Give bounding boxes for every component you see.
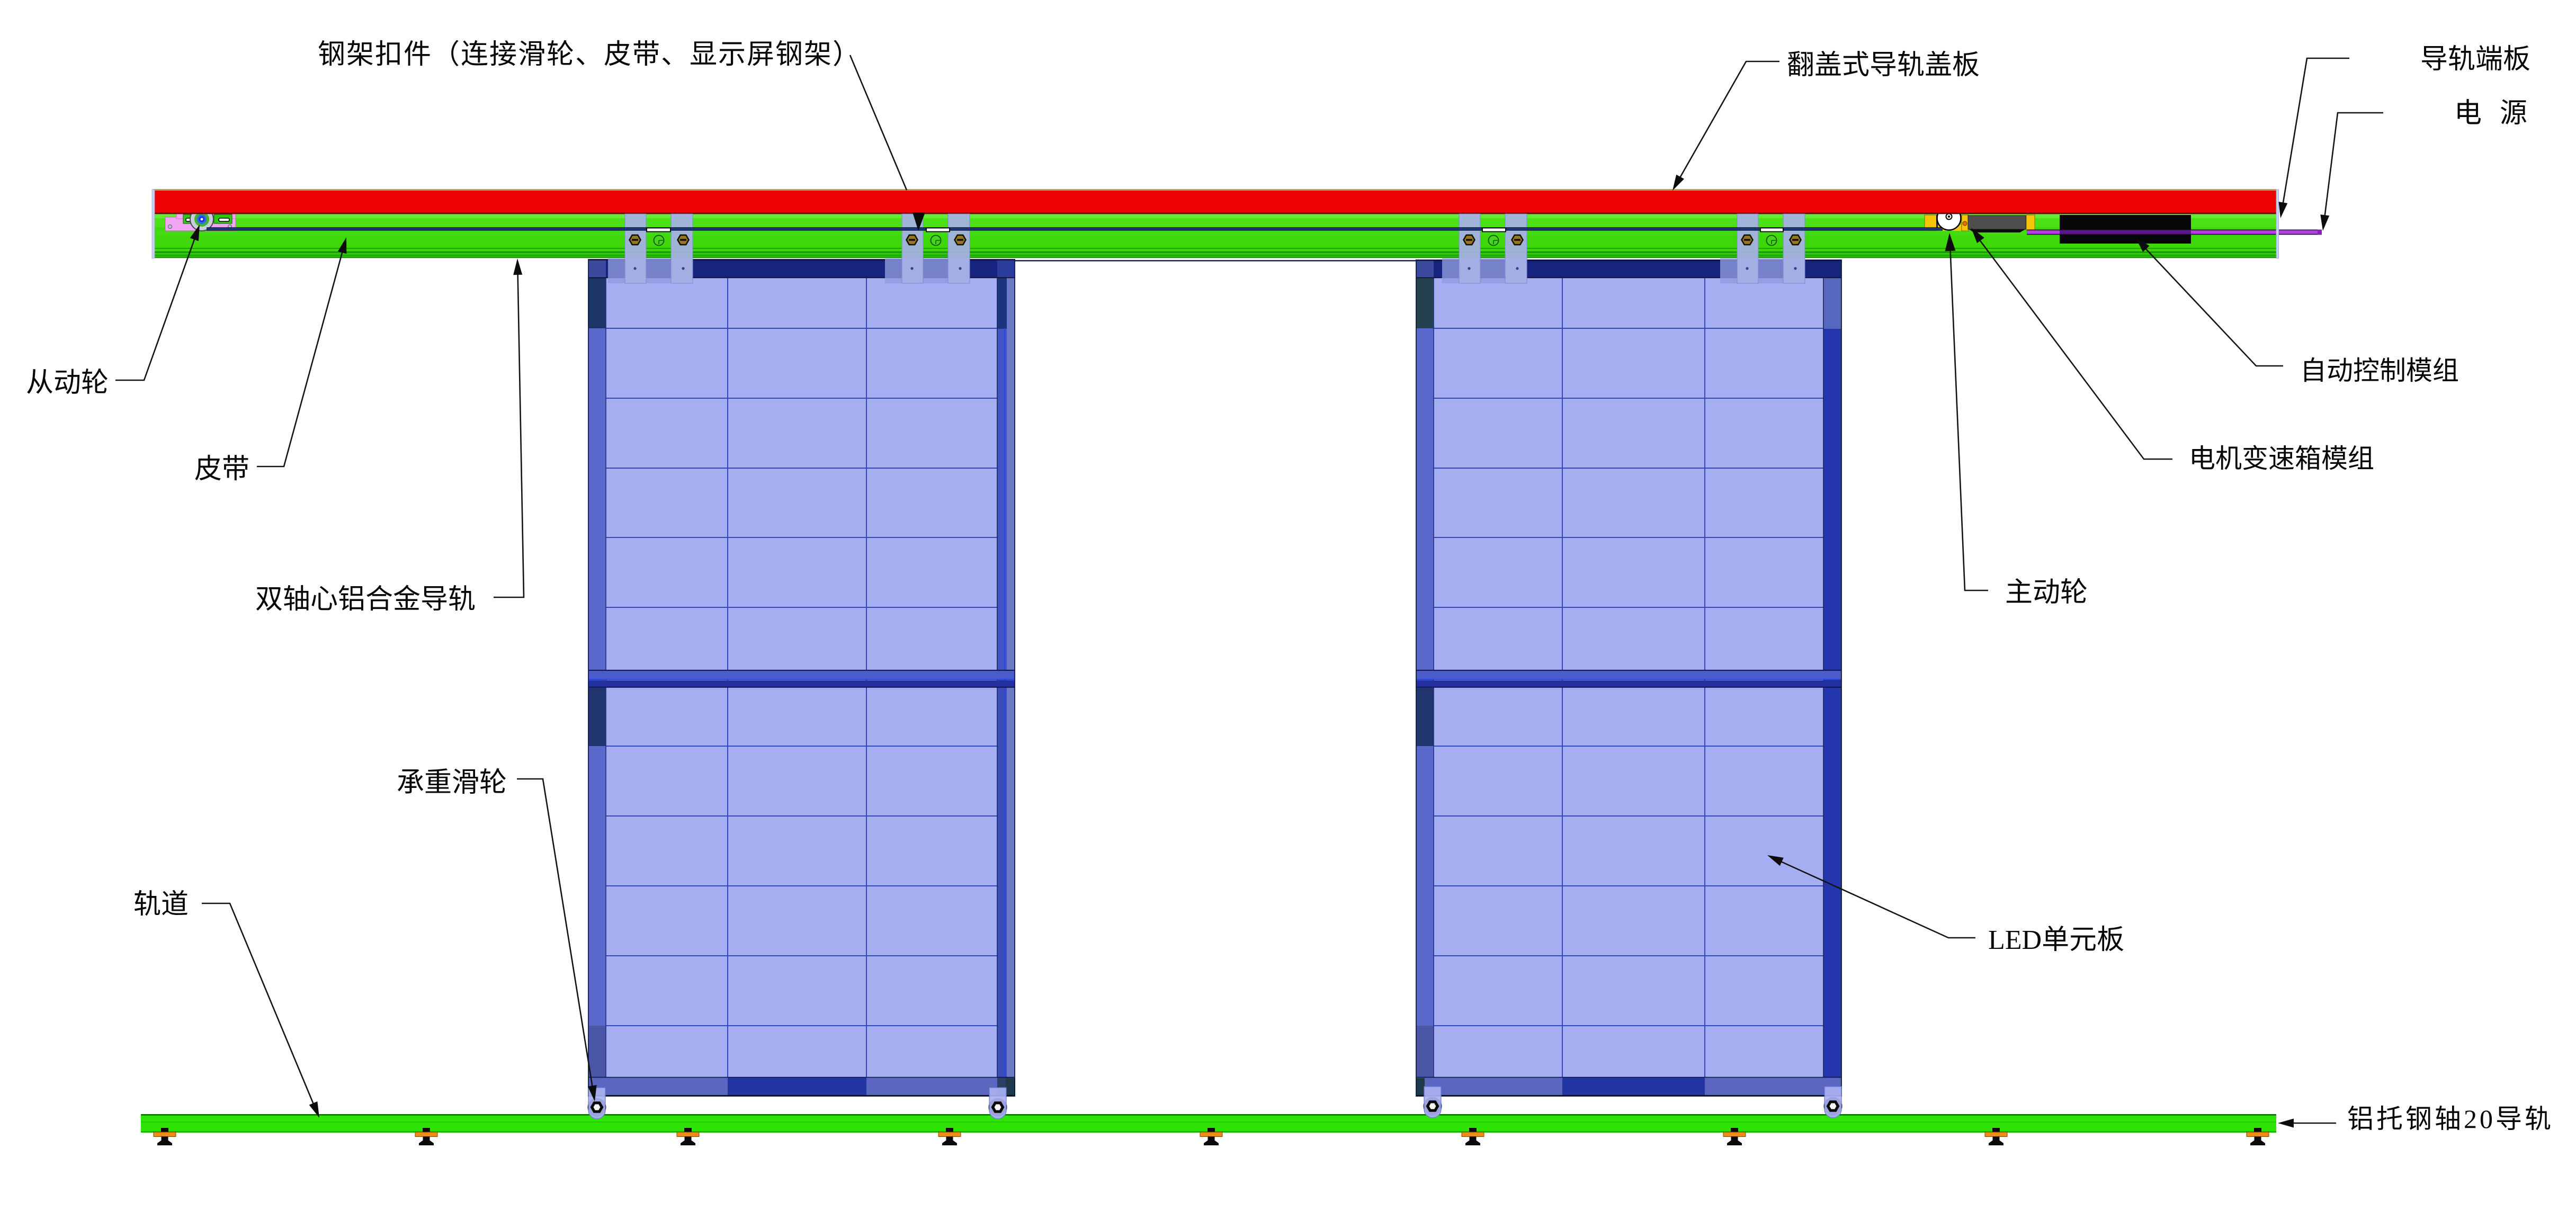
svg-text:承重滑轮: 承重滑轮: [397, 768, 507, 798]
svg-text:翻盖式导轨盖板: 翻盖式导轨盖板: [1787, 50, 1980, 80]
svg-text:皮带: 皮带: [194, 454, 249, 485]
svg-text:自动控制模组: 自动控制模组: [2300, 356, 2459, 385]
svg-text:双轴心铝合金导轨: 双轴心铝合金导轨: [255, 585, 476, 615]
svg-text:从动轮: 从动轮: [26, 368, 109, 398]
svg-text:钢架扣件（连接滑轮、皮带、显示屏钢架）: 钢架扣件（连接滑轮、皮带、显示屏钢架）: [318, 40, 861, 70]
svg-text:轨道: 轨道: [133, 890, 189, 920]
svg-text:主动轮: 主动轮: [2005, 578, 2088, 608]
svg-text:铝托钢轴20导轨: 铝托钢轴20导轨: [2347, 1104, 2554, 1134]
svg-text:电机变速箱模组: 电机变速箱模组: [2189, 444, 2374, 473]
svg-text:电源: 电源: [2454, 98, 2545, 129]
svg-text:LED单元板: LED单元板: [1988, 925, 2124, 955]
svg-text:导轨端板: 导轨端板: [2420, 44, 2530, 75]
